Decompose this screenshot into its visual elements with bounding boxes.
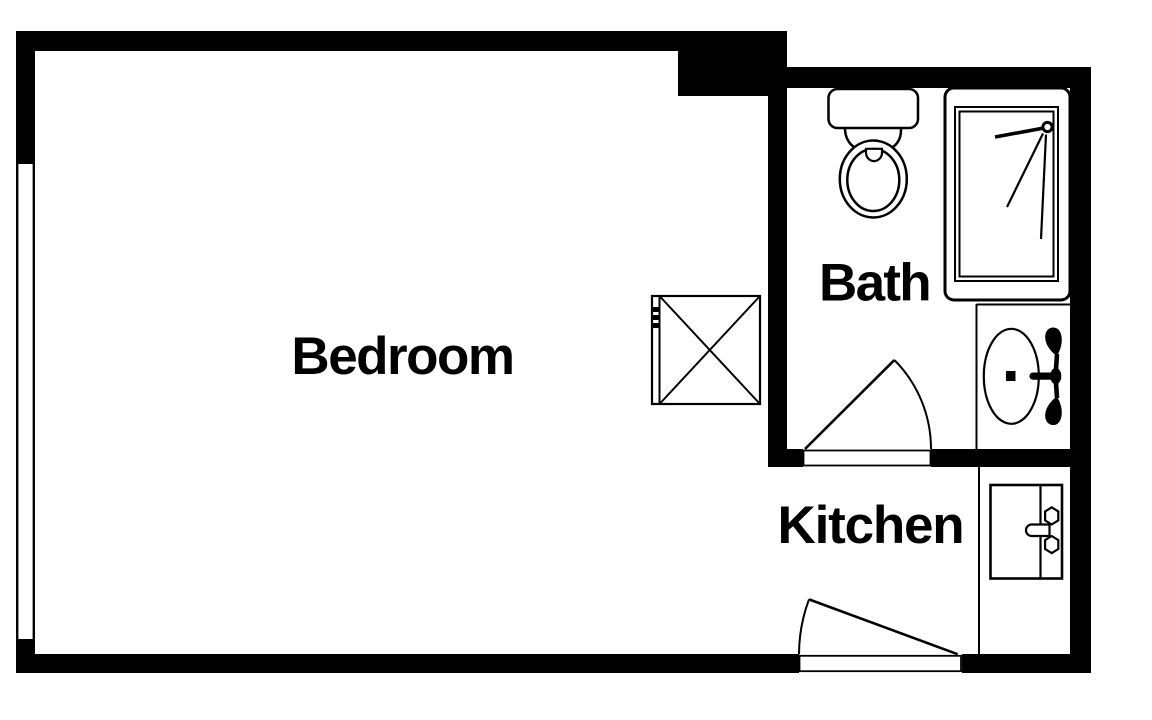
svg-text:Bedroom: Bedroom — [291, 327, 513, 386]
svg-text:Bath: Bath — [819, 254, 930, 313]
svg-text:Kitchen: Kitchen — [778, 496, 964, 555]
